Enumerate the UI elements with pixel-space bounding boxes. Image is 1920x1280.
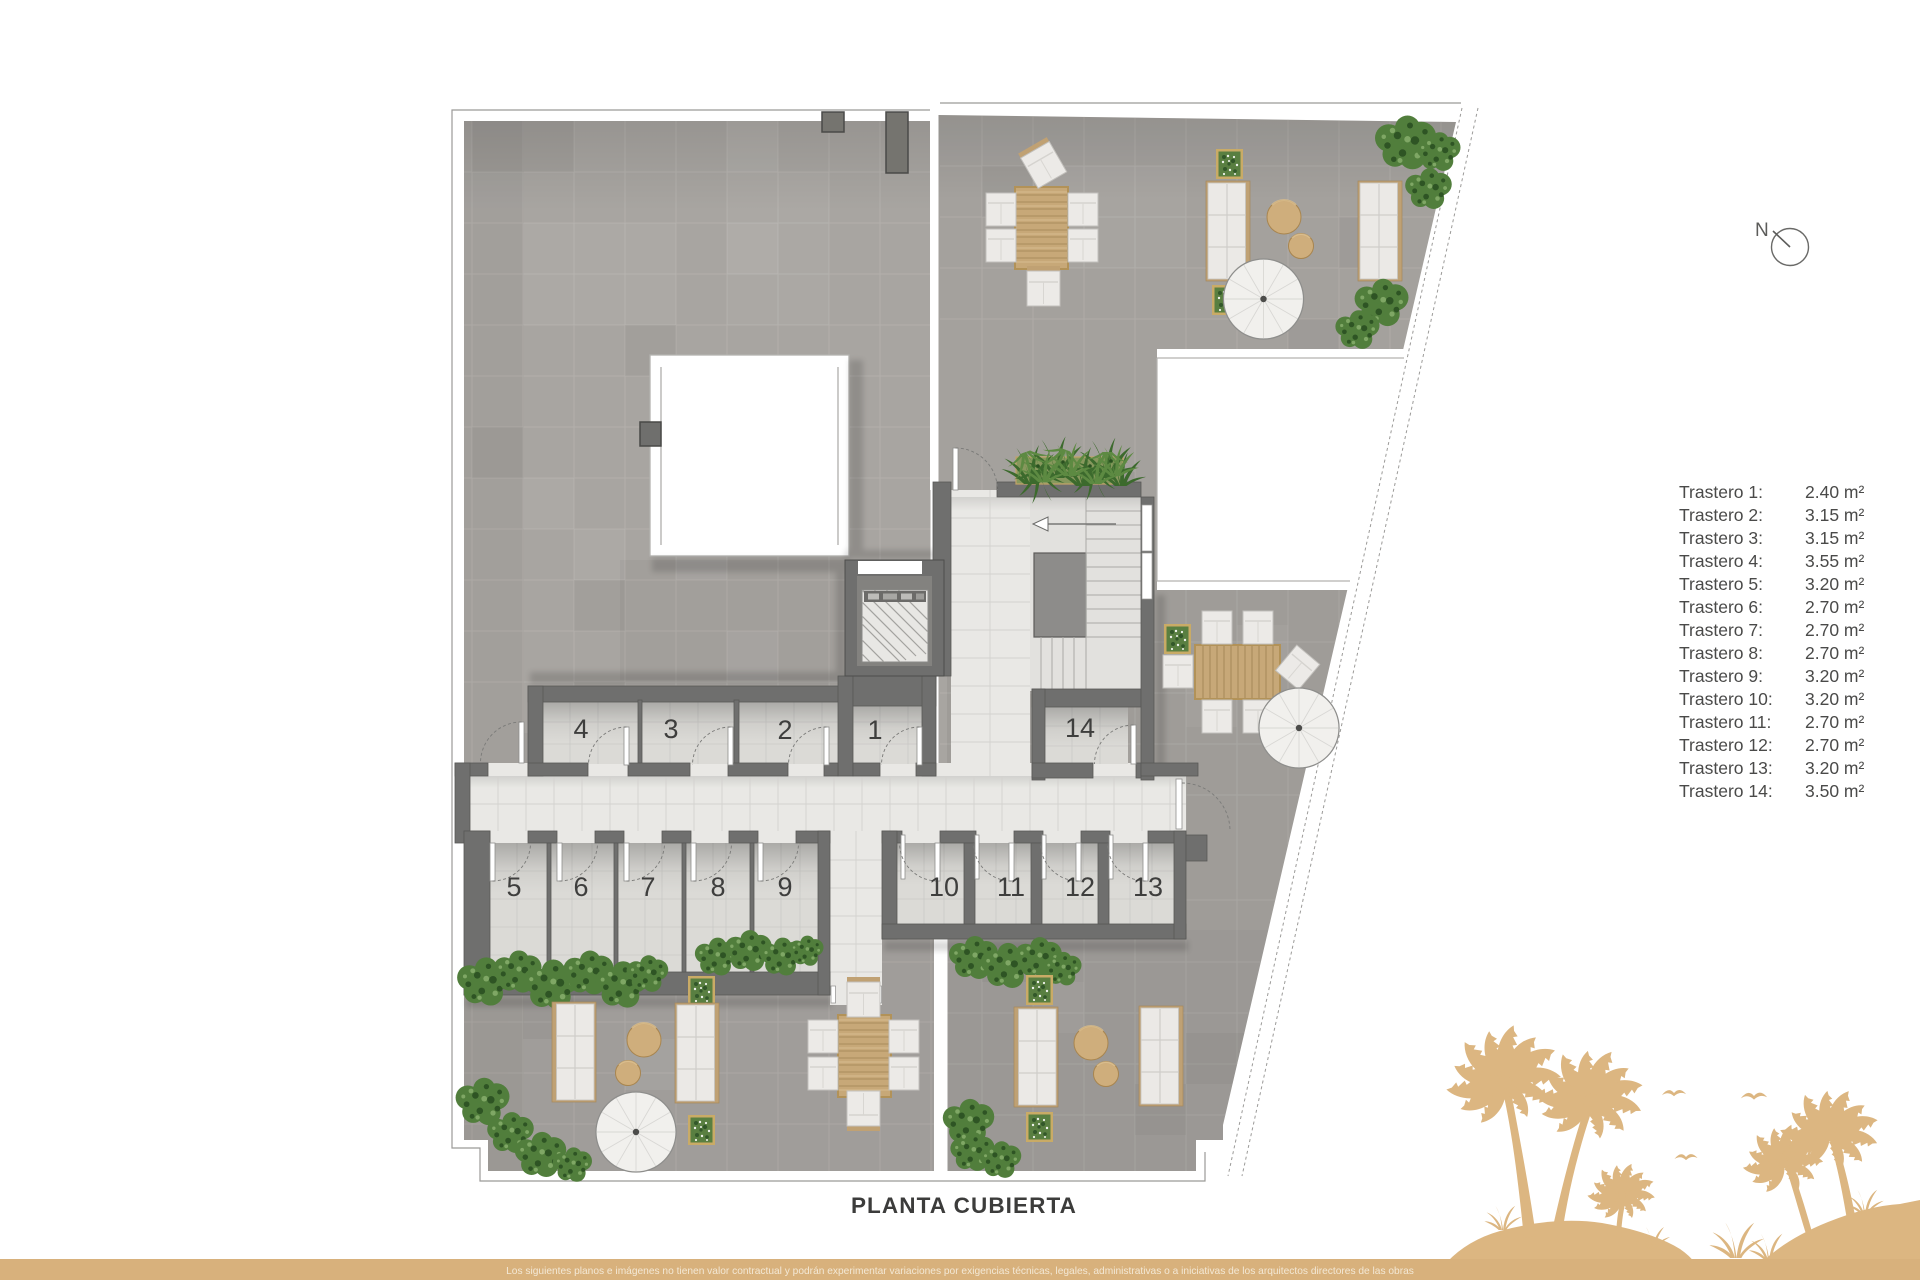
svg-text:Trastero 13:: Trastero 13: xyxy=(1679,758,1773,778)
svg-text:13: 13 xyxy=(1133,872,1163,902)
svg-text:N: N xyxy=(1755,220,1769,241)
svg-text:Trastero 2:: Trastero 2: xyxy=(1679,505,1763,525)
svg-text:14: 14 xyxy=(1065,713,1095,743)
svg-text:7: 7 xyxy=(640,872,655,902)
svg-text:6: 6 xyxy=(573,872,588,902)
svg-text:Trastero 5:: Trastero 5: xyxy=(1679,574,1763,594)
svg-text:3.55 m²: 3.55 m² xyxy=(1805,551,1864,571)
svg-text:2.70 m²: 2.70 m² xyxy=(1805,643,1864,663)
svg-text:Trastero 9:: Trastero 9: xyxy=(1679,666,1763,686)
svg-text:2.40 m²: 2.40 m² xyxy=(1805,482,1864,502)
svg-text:Trastero 8:: Trastero 8: xyxy=(1679,643,1763,663)
svg-text:3.20 m²: 3.20 m² xyxy=(1805,689,1864,709)
svg-text:3.15 m²: 3.15 m² xyxy=(1805,528,1864,548)
svg-text:3.50 m²: 3.50 m² xyxy=(1805,781,1864,801)
svg-text:Trastero 11:: Trastero 11: xyxy=(1679,712,1771,732)
svg-text:12: 12 xyxy=(1065,872,1095,902)
svg-text:Trastero 14:: Trastero 14: xyxy=(1679,781,1773,801)
svg-text:2.70 m²: 2.70 m² xyxy=(1805,620,1864,640)
svg-text:3.20 m²: 3.20 m² xyxy=(1805,758,1864,778)
svg-text:9: 9 xyxy=(777,872,792,902)
svg-text:8: 8 xyxy=(710,872,725,902)
svg-text:PLANTA CUBIERTA: PLANTA CUBIERTA xyxy=(851,1193,1077,1218)
svg-text:Los siguientes planos e imágen: Los siguientes planos e imágenes no tien… xyxy=(506,1266,1414,1277)
svg-text:11: 11 xyxy=(997,872,1025,902)
svg-text:Trastero 1:: Trastero 1: xyxy=(1679,482,1763,502)
svg-text:2.70 m²: 2.70 m² xyxy=(1805,597,1864,617)
svg-text:5: 5 xyxy=(506,872,521,902)
svg-text:3.20 m²: 3.20 m² xyxy=(1805,574,1864,594)
svg-text:3: 3 xyxy=(663,714,678,744)
svg-text:Trastero 7:: Trastero 7: xyxy=(1679,620,1763,640)
svg-text:2.70 m²: 2.70 m² xyxy=(1805,712,1864,732)
svg-text:4: 4 xyxy=(573,714,588,744)
svg-text:3.15 m²: 3.15 m² xyxy=(1805,505,1864,525)
svg-text:3.20 m²: 3.20 m² xyxy=(1805,666,1864,686)
svg-text:Trastero 6:: Trastero 6: xyxy=(1679,597,1763,617)
svg-text:Trastero 4:: Trastero 4: xyxy=(1679,551,1763,571)
svg-text:1: 1 xyxy=(867,715,882,745)
svg-text:10: 10 xyxy=(929,872,959,902)
svg-text:Trastero 12:: Trastero 12: xyxy=(1679,735,1773,755)
svg-text:2.70 m²: 2.70 m² xyxy=(1805,735,1864,755)
svg-text:Trastero 3:: Trastero 3: xyxy=(1679,528,1763,548)
svg-text:2: 2 xyxy=(777,715,792,745)
svg-text:Trastero 10:: Trastero 10: xyxy=(1679,689,1773,709)
